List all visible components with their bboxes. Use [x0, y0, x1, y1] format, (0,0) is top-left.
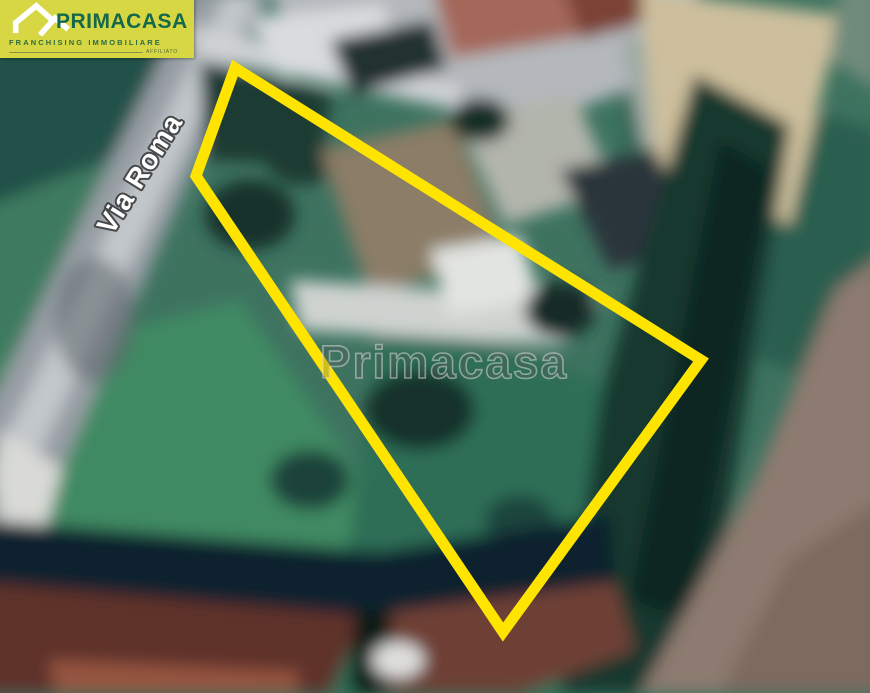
affiliate-label: AFFILIATO: [146, 49, 178, 55]
listing-photo: Via Roma Primacasa PRIMACASA FRANCHISING…: [0, 0, 870, 693]
logo-divider: [9, 52, 143, 53]
satellite-photo: Via Roma Primacasa: [0, 0, 870, 693]
watermark: Primacasa: [320, 336, 568, 388]
logo-rule-row: AFFILIATO: [9, 49, 178, 55]
brand-name: PRIMACASA: [56, 10, 188, 34]
brand-tagline: FRANCHISING IMMOBILIARE: [9, 38, 162, 47]
agency-logo: PRIMACASA FRANCHISING IMMOBILIARE AFFILI…: [0, 0, 194, 58]
